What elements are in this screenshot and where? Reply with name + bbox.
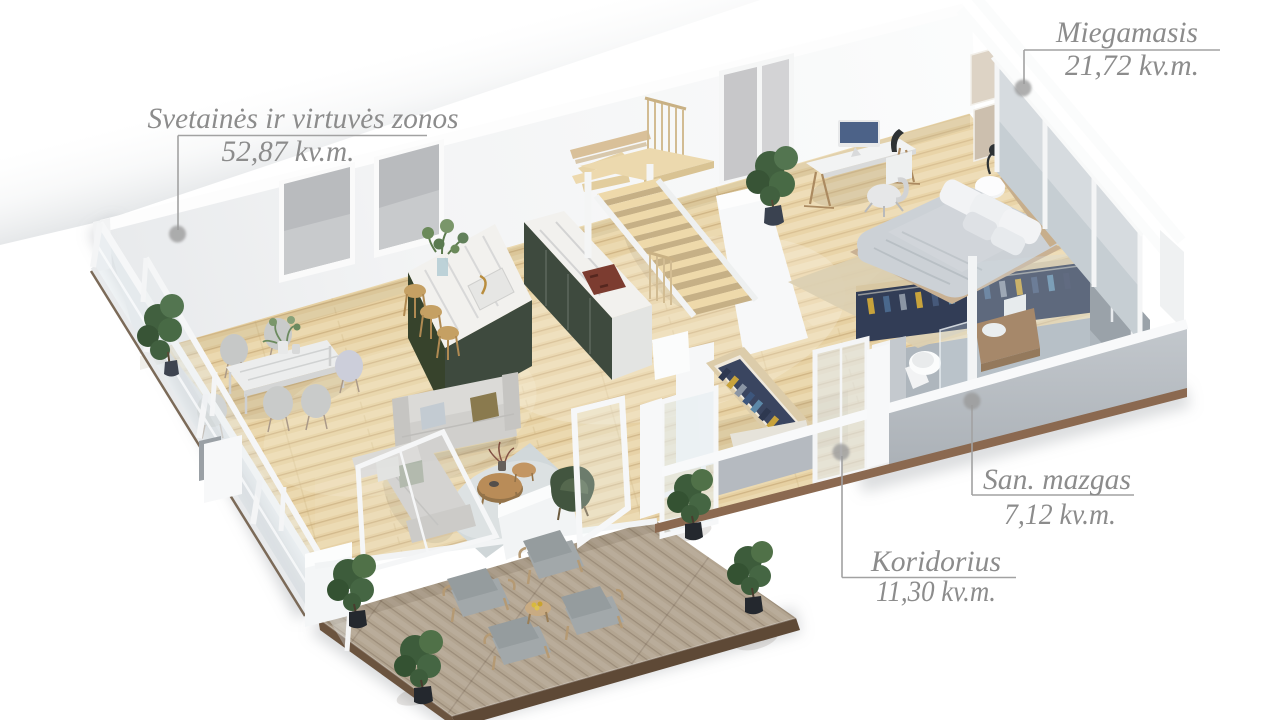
svg-text:21,72 kv.m.: 21,72 kv.m. [1065,49,1199,82]
svg-text:Miegamasis: Miegamasis [1055,16,1198,49]
svg-text:Koridorius: Koridorius [870,545,1001,578]
svg-text:San. mazgas: San. mazgas [983,463,1131,496]
svg-text:11,30 kv.m.: 11,30 kv.m. [876,575,996,608]
svg-text:7,12 kv.m.: 7,12 kv.m. [1004,498,1116,531]
svg-text:52,87 kv.m.: 52,87 kv.m. [222,135,355,168]
svg-text:Svetainės ir virtuvės zonos: Svetainės ir virtuvės zonos [148,102,459,135]
